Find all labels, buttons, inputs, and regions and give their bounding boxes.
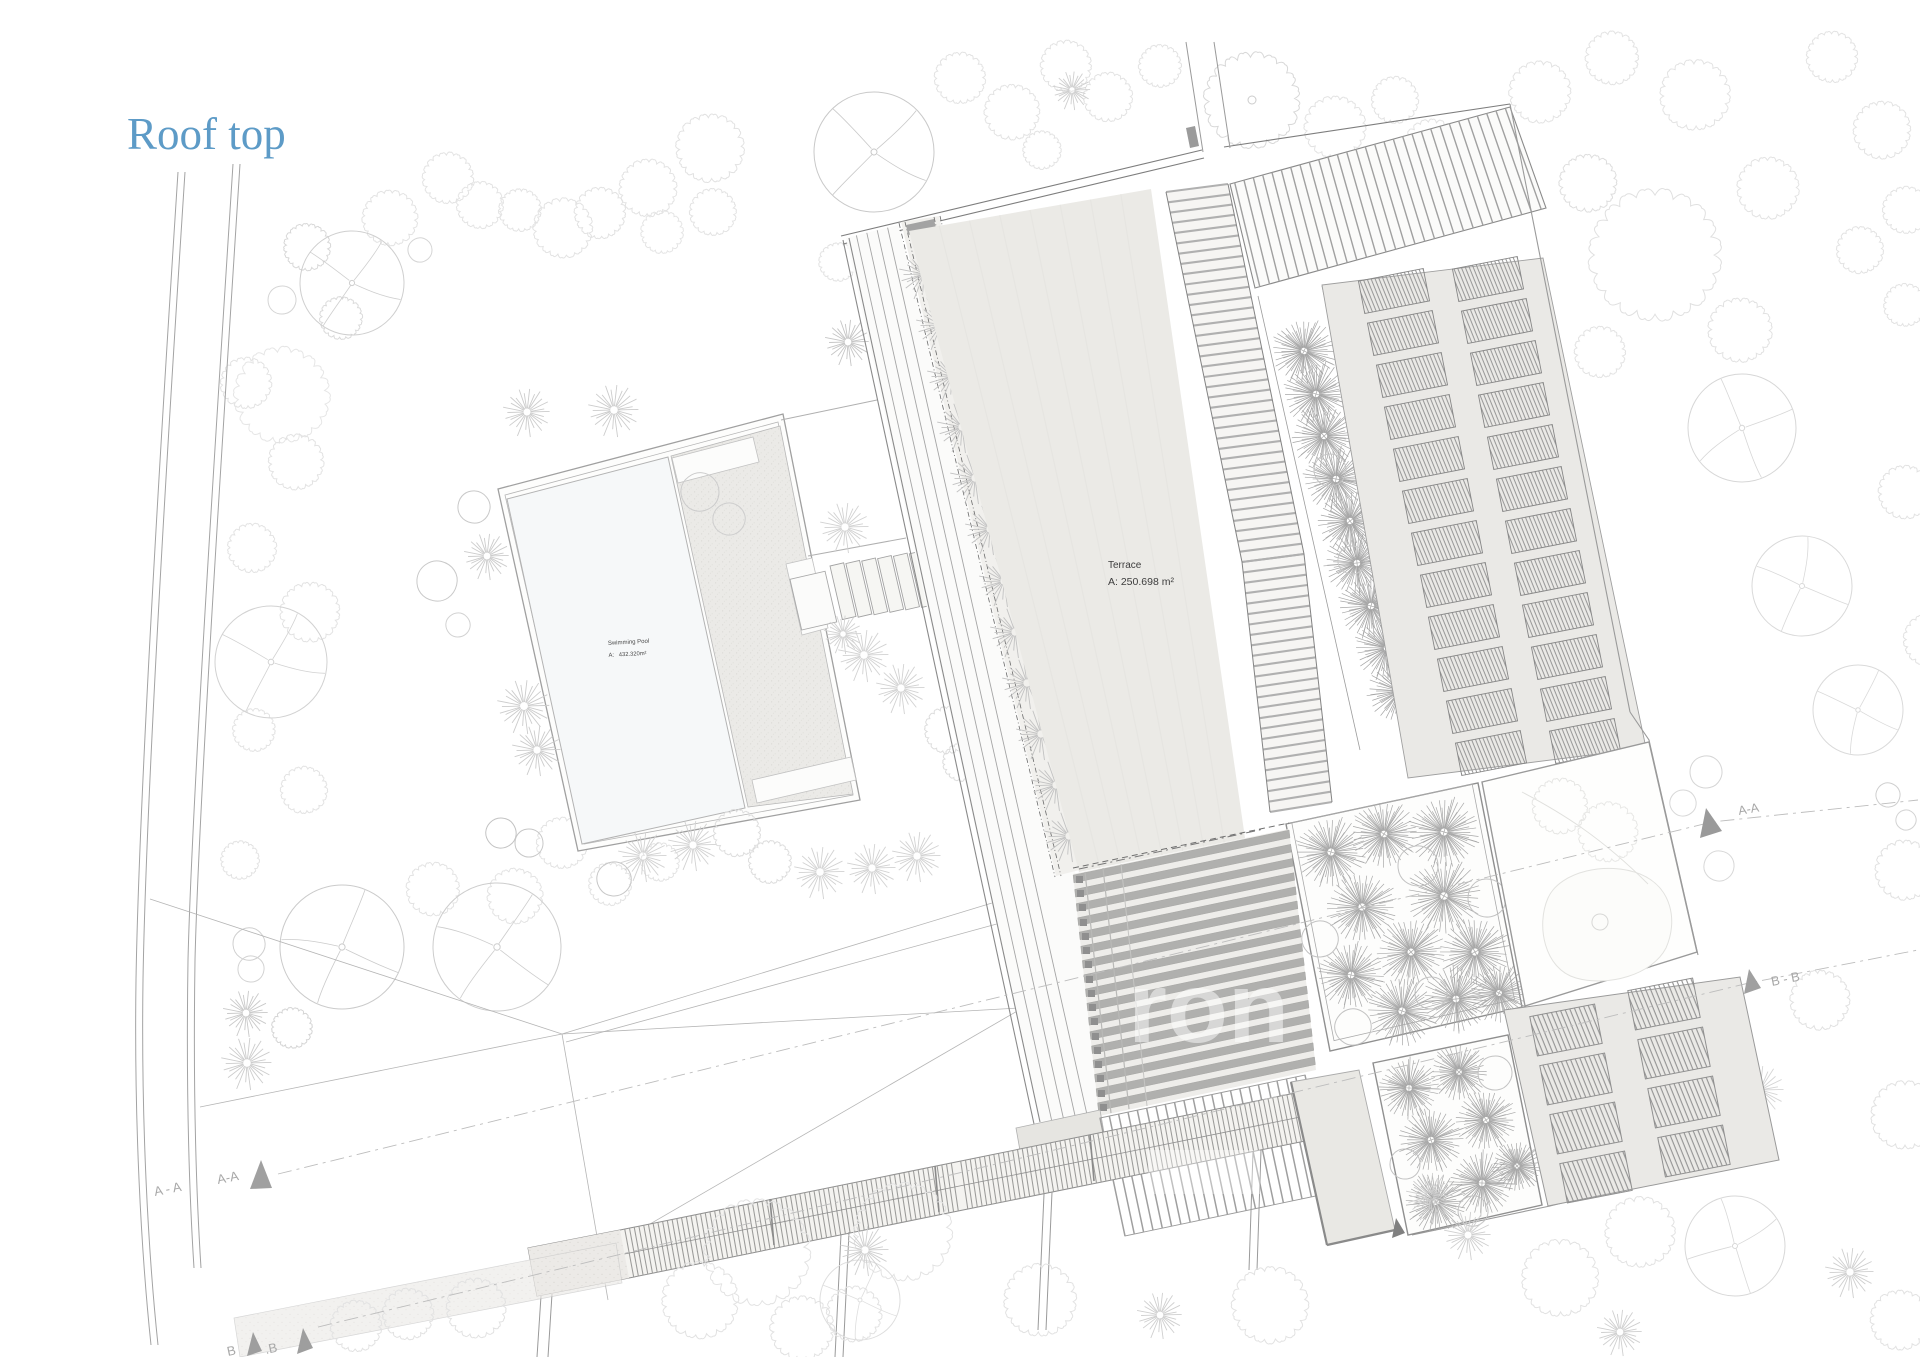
- svg-text:A: 250.698 m²: A: 250.698 m²: [1108, 576, 1174, 588]
- svg-text:Roof top: Roof top: [127, 109, 286, 159]
- svg-text:Terrace: Terrace: [1108, 560, 1142, 571]
- svg-text:ron: ron: [1128, 952, 1289, 1064]
